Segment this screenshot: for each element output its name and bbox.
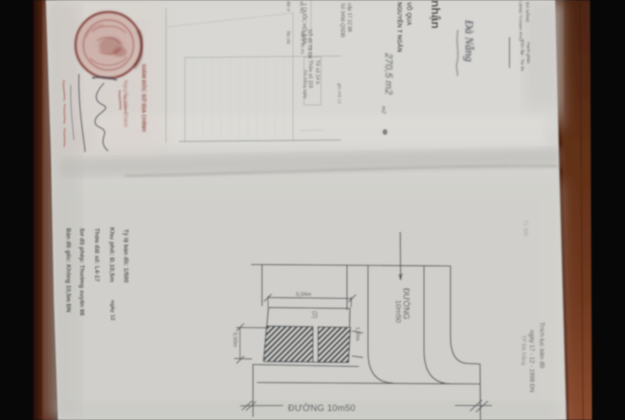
svg-text:Độc lập - Tự do: Độc lập - Tự do <box>520 40 525 72</box>
svg-text:m2: m2 <box>380 106 386 114</box>
svg-text:Nguyễn Văn Thành: Nguyễn Văn Thành <box>122 80 129 127</box>
svg-text:Hạnh phúc: Hạnh phúc <box>526 42 531 65</box>
svg-text:ngày 12: ngày 12 <box>109 300 115 320</box>
svg-text:lâu dài: lâu dài <box>286 31 291 44</box>
svg-text:T.L 500: T.L 500 <box>522 220 528 236</box>
svg-text:5,04m: 5,04m <box>296 292 312 298</box>
svg-text:nhận: nhận <box>429 0 443 29</box>
svg-text:ngày 17 - 12 - 1998 ĐN: ngày 17 - 12 - 1998 ĐN <box>528 330 534 392</box>
svg-text:Đà Nẵng ngày: Đà Nẵng ngày <box>303 70 309 100</box>
svg-text:Trích lục bản đồ: Trích lục bản đồ <box>538 322 547 369</box>
svg-text:SỐ 45 TB ĐK: SỐ 45 TB ĐK <box>306 29 313 60</box>
svg-text:270,5 m2: 270,5 m2 <box>383 52 394 95</box>
svg-text:Bản đồ gốc: Không 10,5m ĐN: Bản đồ gốc: Không 10,5m ĐN <box>65 228 72 312</box>
svg-text:Khu phố: Đ.10,5m: Khu phố: Đ.10,5m <box>108 227 116 282</box>
svg-text:Thửa đất số: L4-17: Thửa đất số: L4-17 <box>93 228 100 282</box>
svg-text:3,50m: 3,50m <box>232 332 238 348</box>
svg-text:VÕ QUA: VÕ QUA <box>405 2 412 26</box>
svg-text:ĐÀ NẴNG: ĐÀ NẴNG <box>525 2 531 23</box>
svg-text:NGUYỄN T NGÂN: NGUYỄN T NGÂN <box>396 2 403 52</box>
svg-text:Tờ số 14 b: Tờ số 14 b <box>314 60 320 84</box>
svg-text:cấp 17.12.98: cấp 17.12.98 <box>346 3 352 32</box>
svg-text:Số 3456 QSDĐ: Số 3456 QSDĐ <box>339 3 345 38</box>
svg-text:TP Đà Nẵng: TP Đà Nẵng <box>520 335 527 365</box>
svg-text:96 m2: 96 m2 <box>299 1 304 14</box>
svg-text:1,00m: 1,00m <box>354 327 360 341</box>
svg-text:đất ở: đất ở <box>286 1 292 12</box>
svg-text:10m50: 10m50 <box>394 300 403 323</box>
svg-text:Đà Nẵng: Đà Nẵng <box>463 19 476 62</box>
svg-text:UBND THÀNH PHỐ: UBND THÀNH PHỐ <box>518 1 524 42</box>
svg-text:(2): (2) <box>311 311 317 318</box>
svg-text:GIÁM ĐỐC SỞ ĐỊA CHÍNH: GIÁM ĐỐC SỞ ĐỊA CHÍNH <box>140 64 148 132</box>
svg-text:Sơ đồ phép: Thường xuyên 98: Sơ đồ phép: Thường xuyên 98 <box>78 228 84 316</box>
svg-text:đất ở đô thị: đất ở đô thị <box>300 31 306 54</box>
svg-text:ĐƯỜNG 10m50: ĐƯỜNG 10m50 <box>288 403 356 413</box>
svg-text:Tỷ lệ bản đồ: 1/500: Tỷ lệ bản đồ: 1/500 <box>122 229 128 283</box>
svg-text:ghi chú 12: ghi chú 12 <box>337 83 342 104</box>
